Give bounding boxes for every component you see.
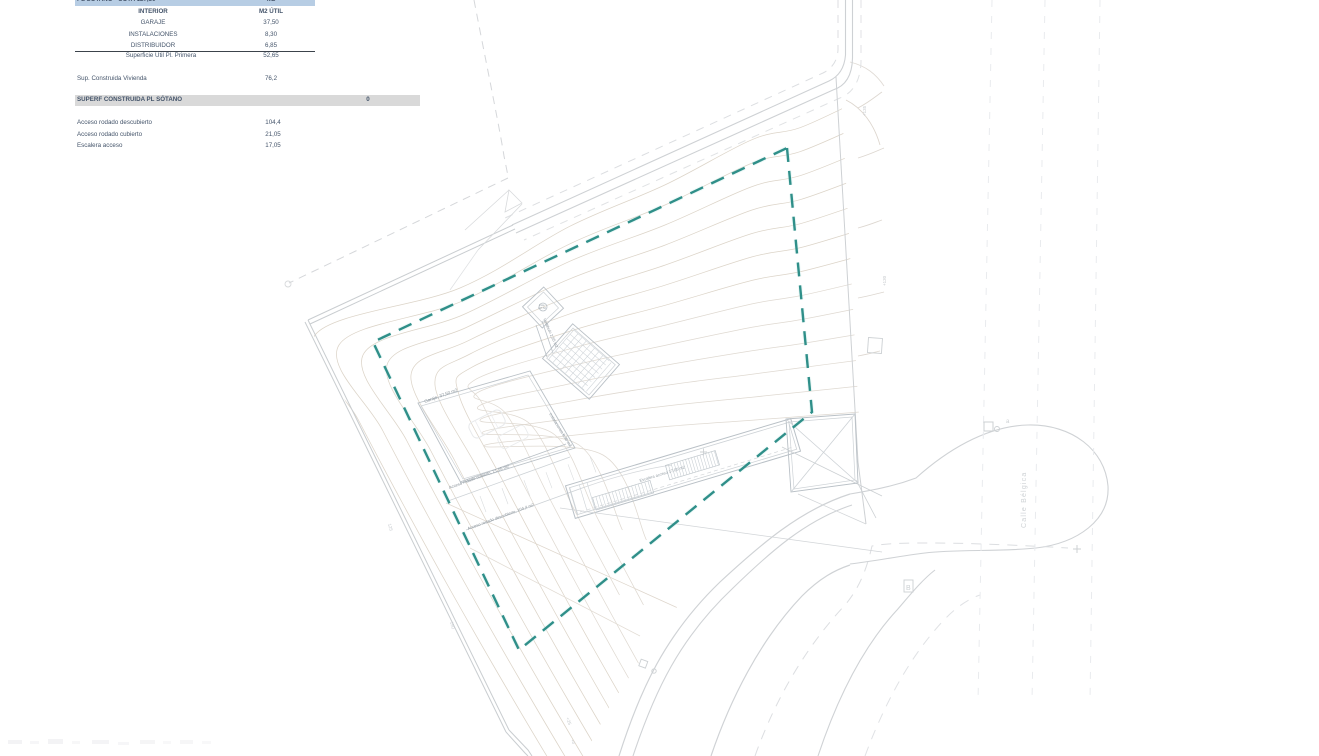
- svg-text:+25: +25: [565, 717, 572, 726]
- svg-text:Escalera acceso 17,05 m2: Escalera acceso 17,05 m2: [639, 464, 686, 483]
- svg-text:Garaje, 37,50 m2: Garaje, 37,50 m2: [424, 387, 459, 404]
- svg-text:Instalaciones 8,30 m2: Instalaciones 8,30 m2: [548, 412, 573, 448]
- svg-text:+130: +130: [882, 275, 887, 286]
- svg-text:127,50: 127,50: [538, 306, 546, 310]
- svg-text:+135: +135: [862, 105, 867, 116]
- svg-text:B: B: [906, 585, 911, 592]
- svg-text:Acceso rodado descubierto, 104: Acceso rodado descubierto, 104,4 m2: [467, 502, 536, 531]
- svg-text:Vestibulo 2,95 m2: Vestibulo 2,95 m2: [542, 317, 560, 349]
- svg-text:Calle Bélgica: Calle Bélgica: [1021, 472, 1028, 528]
- svg-text:a: a: [1006, 419, 1010, 425]
- svg-text:125: 125: [387, 523, 394, 532]
